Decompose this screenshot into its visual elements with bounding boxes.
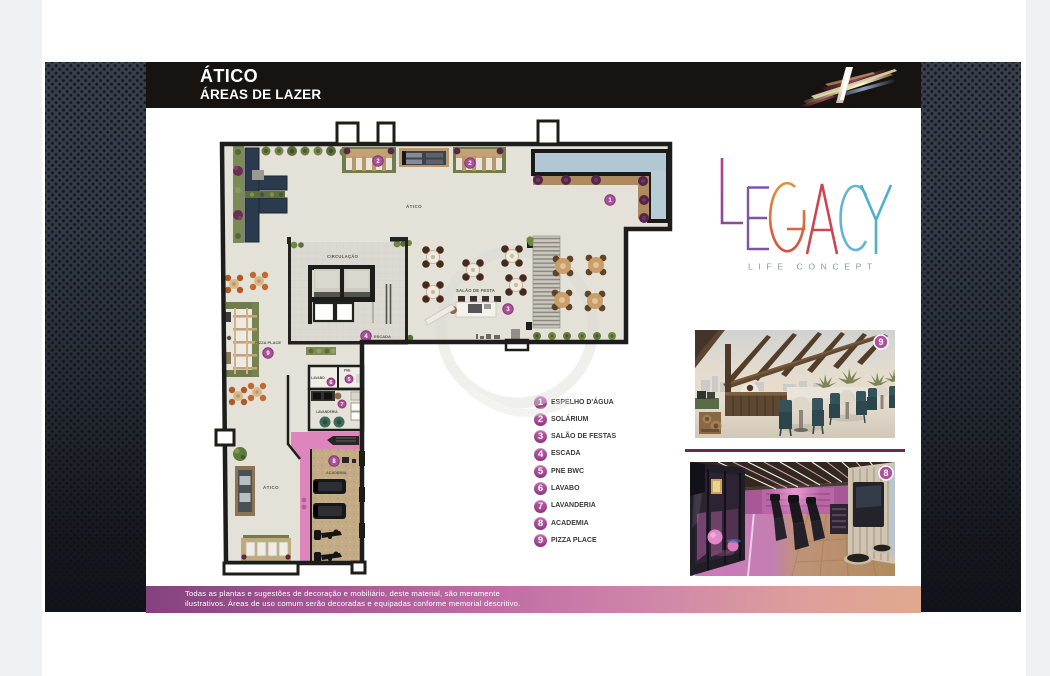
- svg-text:ÁTICO: ÁTICO: [263, 484, 279, 490]
- svg-text:ÁTICO: ÁTICO: [406, 203, 422, 209]
- svg-text:5: 5: [348, 377, 351, 383]
- svg-text:SALÃO DE FESTA: SALÃO DE FESTA: [456, 288, 495, 293]
- svg-text:PNE: PNE: [344, 369, 351, 373]
- svg-text:ACADEMIA: ACADEMIA: [326, 471, 347, 475]
- svg-text:7: 7: [341, 402, 344, 408]
- svg-text:ESCADA: ESCADA: [374, 334, 391, 339]
- svg-text:8: 8: [883, 468, 888, 478]
- svg-text:9: 9: [878, 337, 883, 347]
- svg-text:LAVABO: LAVABO: [311, 376, 325, 380]
- svg-text:PIZZA PLACE: PIZZA PLACE: [255, 340, 281, 345]
- svg-text:6: 6: [330, 380, 333, 386]
- svg-text:LAVANDERIA: LAVANDERIA: [316, 410, 338, 414]
- svg-text:CIRCULAÇÃO: CIRCULAÇÃO: [327, 254, 359, 259]
